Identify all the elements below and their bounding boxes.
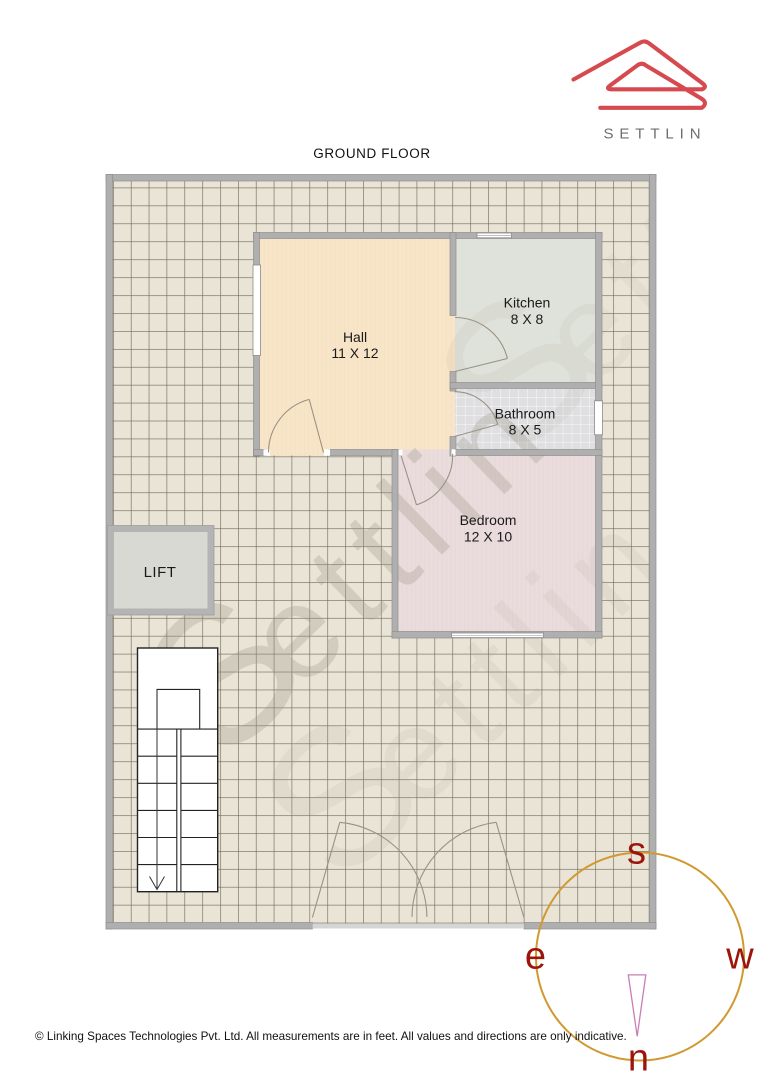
svg-text:12 X 10: 12 X 10 [464, 529, 512, 545]
svg-text:8 X 8: 8 X 8 [511, 311, 544, 327]
svg-text:© Linking Spaces Technologies: © Linking Spaces Technologies Pvt. Ltd. … [35, 1030, 627, 1043]
svg-text:Bedroom: Bedroom [460, 512, 517, 528]
svg-text:Hall: Hall [343, 329, 367, 345]
svg-text:11 X 12: 11 X 12 [331, 345, 378, 361]
svg-text:LIFT: LIFT [144, 564, 177, 581]
svg-text:8 X 5: 8 X 5 [509, 422, 542, 438]
svg-text:e: e [525, 936, 546, 978]
svg-text:Kitchen: Kitchen [504, 295, 551, 311]
svg-text:GROUND FLOOR: GROUND FLOOR [313, 146, 430, 161]
svg-text:w: w [725, 936, 754, 978]
svg-text:Bathroom: Bathroom [495, 406, 556, 422]
svg-text:SETTLIN: SETTLIN [604, 126, 707, 143]
svg-text:s: s [627, 831, 646, 873]
svg-text:n: n [628, 1038, 649, 1080]
